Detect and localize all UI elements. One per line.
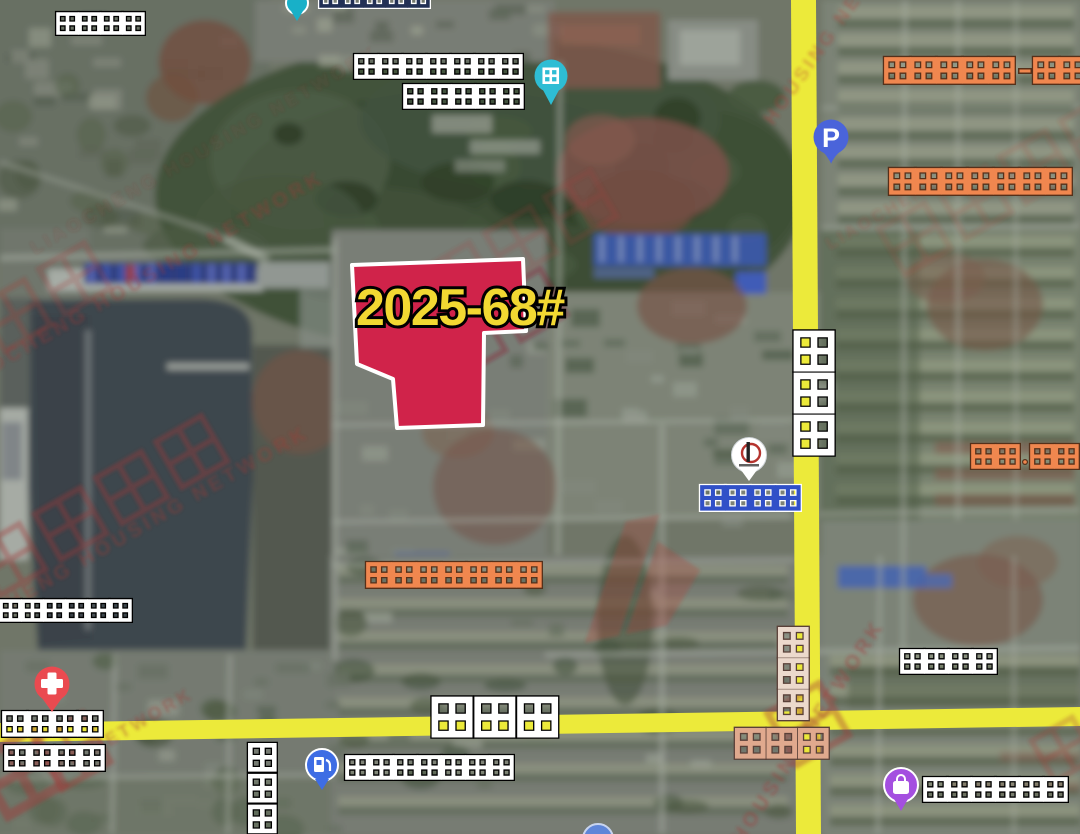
svg-text:P: P: [822, 123, 840, 153]
svg-text:2025-68#: 2025-68#: [356, 279, 565, 337]
